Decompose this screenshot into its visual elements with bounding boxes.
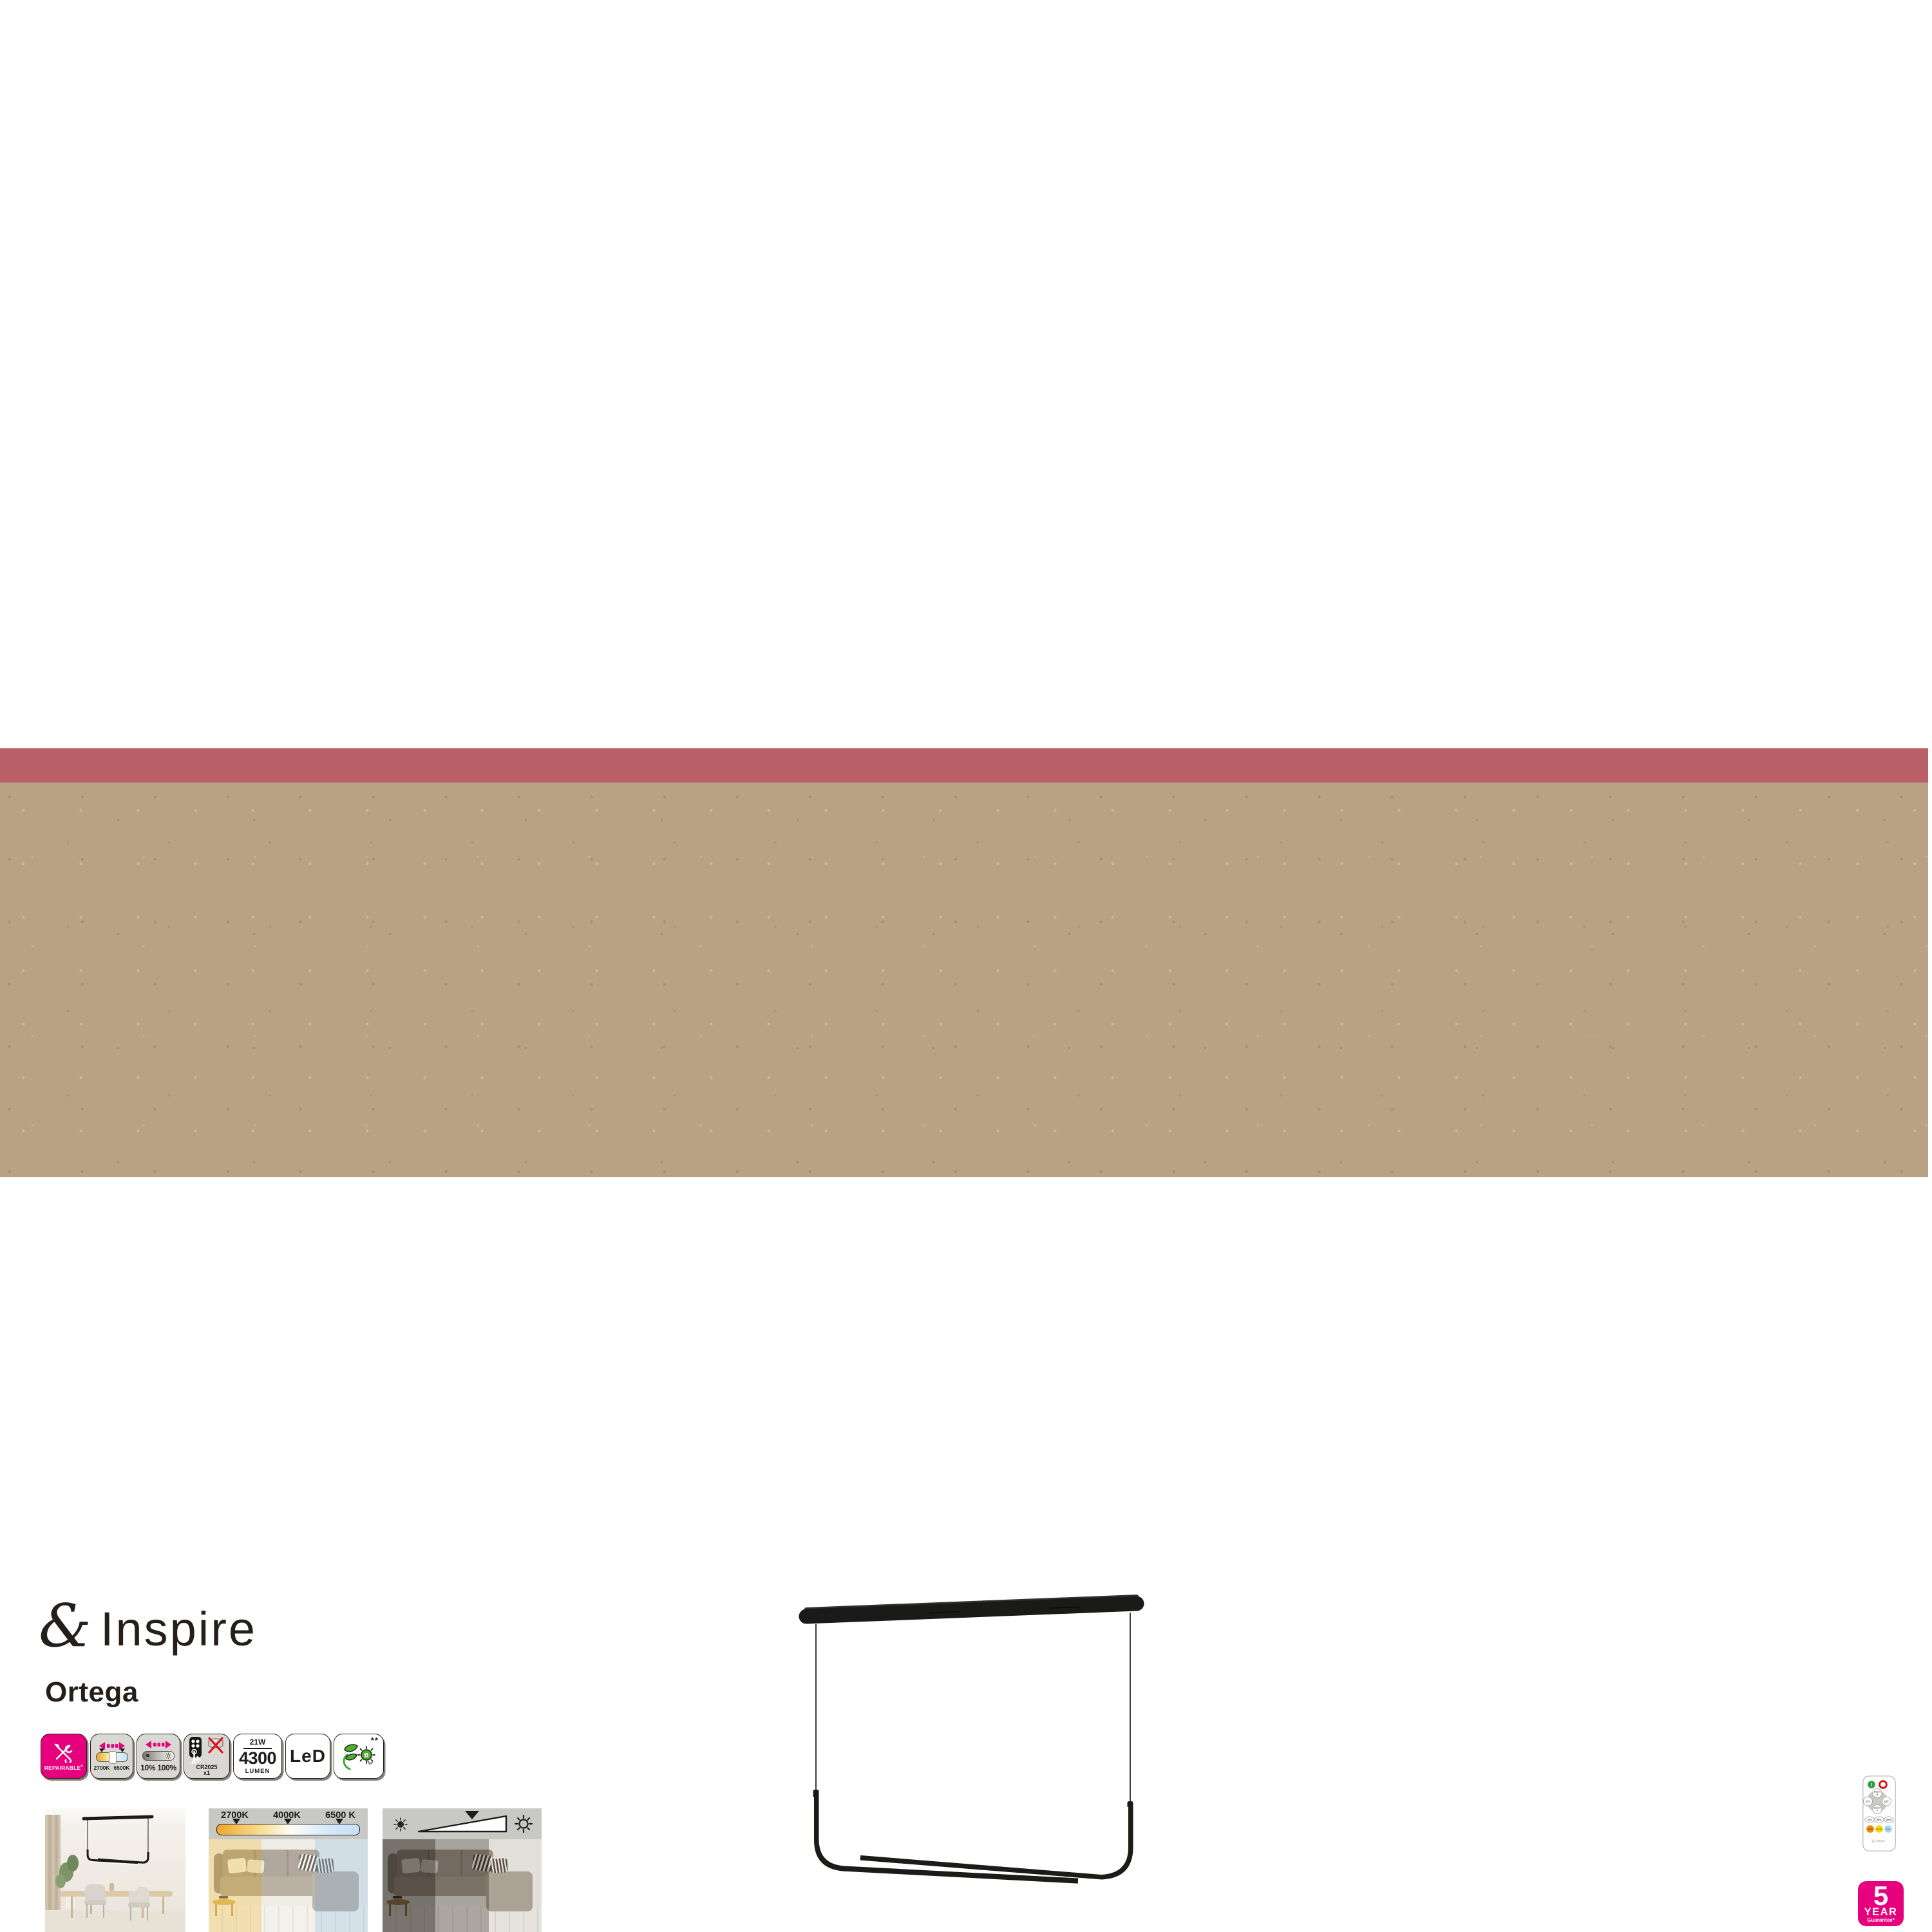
battery-model: CR2025x1: [196, 1765, 217, 1777]
dimming-demo-photo: [383, 1808, 542, 1932]
warm-tint-band: [209, 1839, 261, 1932]
guarantee-badge: 5 YEAR Guarantee*: [1858, 1881, 1904, 1926]
guarantee-year: YEAR: [1864, 1907, 1898, 1918]
cct-gradient-bar: [216, 1824, 360, 1835]
cct-range: 2700K6500K: [94, 1765, 130, 1771]
feature-badges-row: REPAIRABLE® 2700K6500K: [41, 1734, 384, 1779]
cool-tint-band: [315, 1839, 368, 1932]
svg-text:−: −: [1877, 1810, 1879, 1814]
lumen-label: LUMEN: [245, 1768, 270, 1775]
svg-text:&: &: [1872, 1840, 1875, 1844]
guarantee-number: 5: [1873, 1884, 1888, 1908]
coin-cell-crossed-icon: [206, 1736, 225, 1756]
badge-power-lumen: 21W 4300 LUMEN: [233, 1734, 282, 1779]
guarantee-text: Guarantee*: [1867, 1918, 1895, 1923]
dimming-demo-header: [383, 1808, 542, 1839]
eco-leaf-bulb-icon: B: [341, 1741, 377, 1772]
dimming-wedge-icon: [383, 1808, 542, 1839]
badge-remote-battery: CR2025x1: [184, 1734, 230, 1779]
dimmer-slider-icon: [142, 1751, 175, 1761]
badge-color-temperature: 2700K6500K: [90, 1734, 133, 1779]
led-label: LeD: [290, 1746, 326, 1766]
package-front: & Inspire Ortega REPAIRABLE®: [0, 0, 1932, 1932]
svg-text:10%: 10%: [1867, 1819, 1872, 1821]
badge-dimmable: 10% 100%: [137, 1734, 180, 1779]
wattage: 21W: [250, 1738, 266, 1747]
dim-range: 10% 100%: [140, 1763, 176, 1772]
lifestyle-photo-dining: [45, 1808, 185, 1932]
lumen-value: 4300: [239, 1750, 276, 1767]
dark-dim-band: [383, 1839, 435, 1932]
dining-table: [59, 1891, 173, 1897]
mini-pendant-icon: [76, 1812, 160, 1871]
brand-color-stripe: [0, 748, 1928, 782]
brand-logo: & Inspire: [39, 1599, 257, 1658]
badge-led: LeD: [285, 1734, 330, 1779]
remote-power-off-button: [1880, 1781, 1887, 1788]
remote-brand: Inspire: [1876, 1839, 1885, 1842]
remote-control: I BRIGHT + BRIGHT − C/T C/T 10% 50% 100%…: [1862, 1776, 1896, 1851]
svg-text:50%: 50%: [1877, 1819, 1882, 1821]
neutral-tint-band: [261, 1839, 315, 1932]
badge-eco: ** B: [334, 1734, 384, 1779]
svg-text:100%: 100%: [1886, 1819, 1892, 1821]
badge-repairable: REPAIRABLE®: [41, 1734, 87, 1779]
wrench-screwdriver-icon: [53, 1742, 75, 1763]
remote-control-icon: [188, 1736, 205, 1765]
kraft-panel: & Inspire Ortega REPAIRABLE®: [0, 782, 1928, 1177]
brand-name: Inspire: [100, 1602, 257, 1656]
double-arrow-icon: [146, 1741, 171, 1748]
inspire-ampersand-icon: &: [39, 1596, 91, 1656]
cct-demo-header: 2700K 4000K 6500 K: [209, 1808, 368, 1839]
sun-icon: [165, 1752, 172, 1759]
led-strip-right: [860, 1807, 1128, 1874]
bright-dim-band: [489, 1839, 542, 1932]
product-name: Ortega: [45, 1676, 138, 1709]
svg-text:C/T: C/T: [1884, 1800, 1889, 1803]
svg-text:+: +: [1877, 1794, 1879, 1797]
cct-demo-photo: 2700K 4000K 6500 K: [209, 1808, 368, 1932]
svg-text:C/T: C/T: [1866, 1800, 1870, 1803]
eco-stars: **: [371, 1736, 379, 1745]
product-pendant-lamp: [797, 1591, 1150, 1894]
svg-text:COLD: COLD: [1886, 1829, 1891, 1830]
svg-text:B: B: [365, 1752, 369, 1759]
svg-text:NEUTRAL: NEUTRAL: [1876, 1828, 1883, 1830]
svg-text:WARM: WARM: [1868, 1828, 1873, 1830]
cct-slider-icon: [96, 1752, 128, 1762]
chair: [85, 1884, 106, 1901]
svg-text:I: I: [1871, 1782, 1872, 1788]
repairable-label: REPAIRABLE®: [44, 1765, 84, 1771]
mid-dim-band: [435, 1839, 489, 1932]
